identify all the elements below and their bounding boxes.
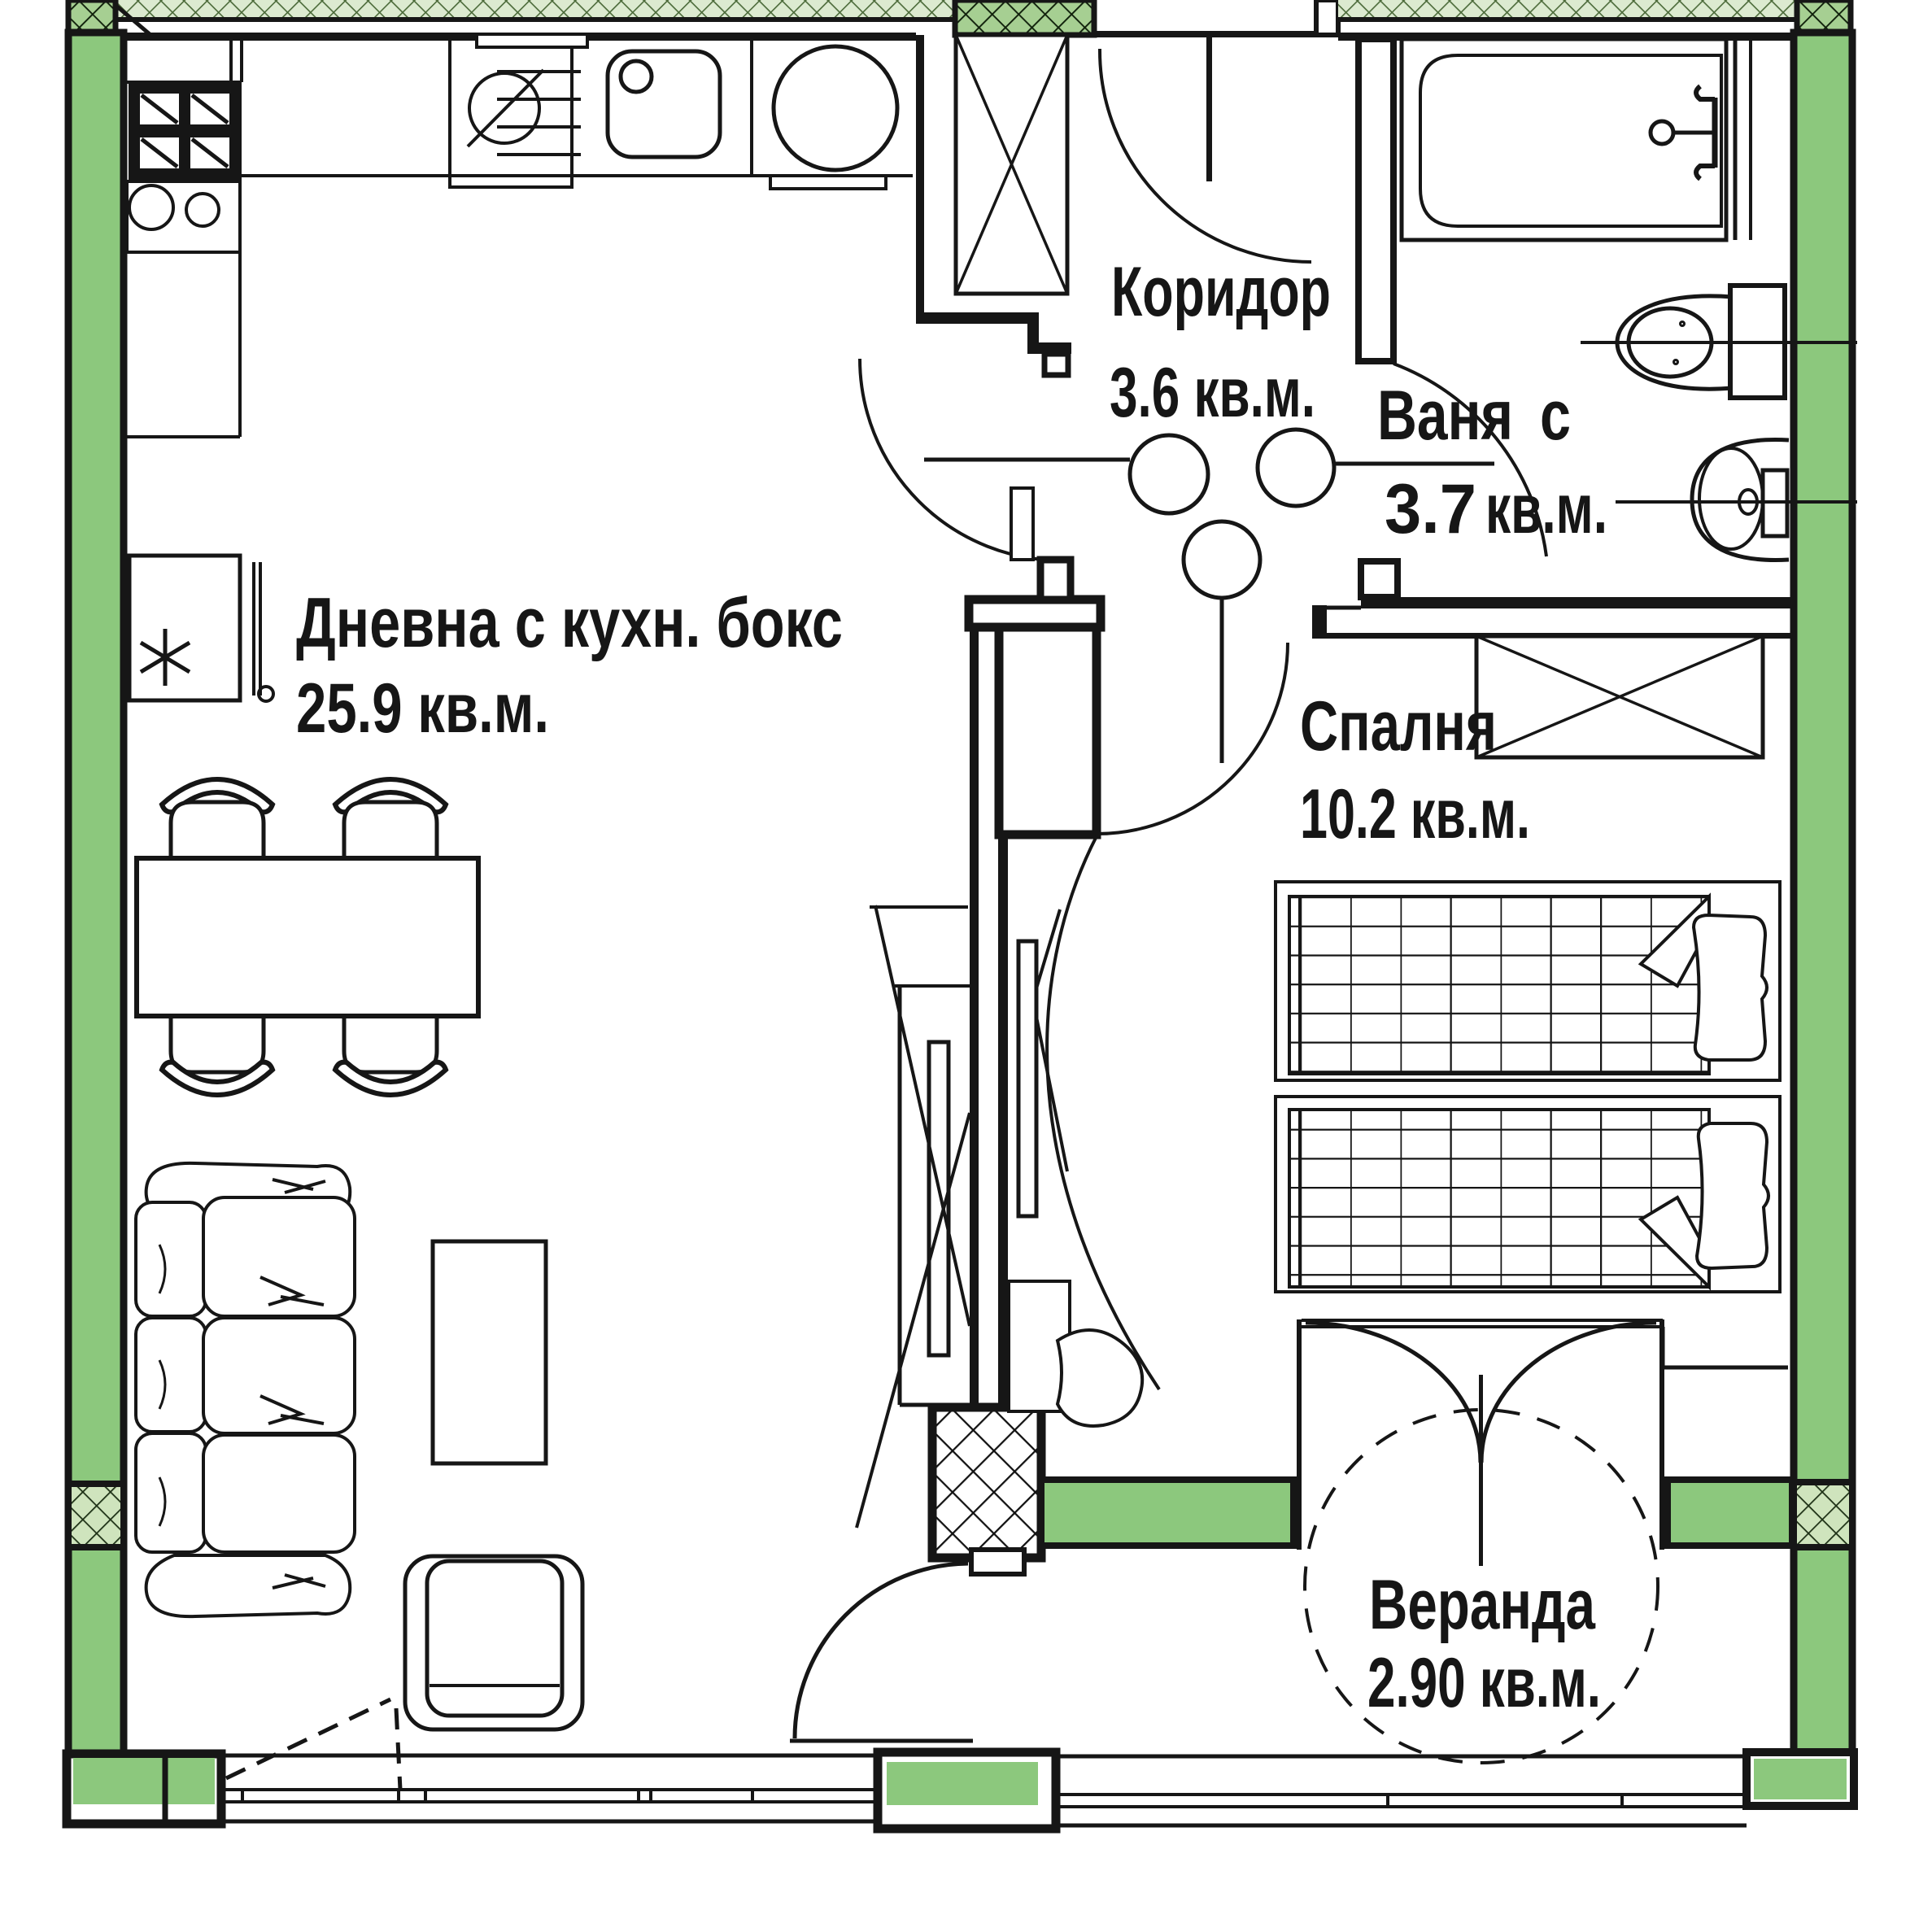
svg-text:10.2 кв.м.: 10.2 кв.м.: [1300, 775, 1530, 853]
svg-text:Дневна с кухн. бокс: Дневна с кухн. бокс: [296, 584, 843, 662]
svg-text:3.6 кв.м.: 3.6 кв.м.: [1110, 354, 1315, 432]
svg-text:с: с: [1540, 377, 1571, 455]
svg-text:Спалня: Спалня: [1300, 687, 1497, 765]
svg-text:Веранда: Веранда: [1369, 1566, 1596, 1644]
svg-text:2.90 кв.м.: 2.90 кв.м.: [1367, 1644, 1601, 1722]
svg-text:кв.м.: кв.м.: [1485, 470, 1607, 548]
svg-text:3.7: 3.7: [1385, 470, 1476, 548]
svg-text:Ваня: Ваня: [1377, 377, 1513, 455]
svg-text:Коридор: Коридор: [1111, 253, 1331, 331]
svg-text:25.9 кв.м.: 25.9 кв.м.: [296, 669, 549, 748]
